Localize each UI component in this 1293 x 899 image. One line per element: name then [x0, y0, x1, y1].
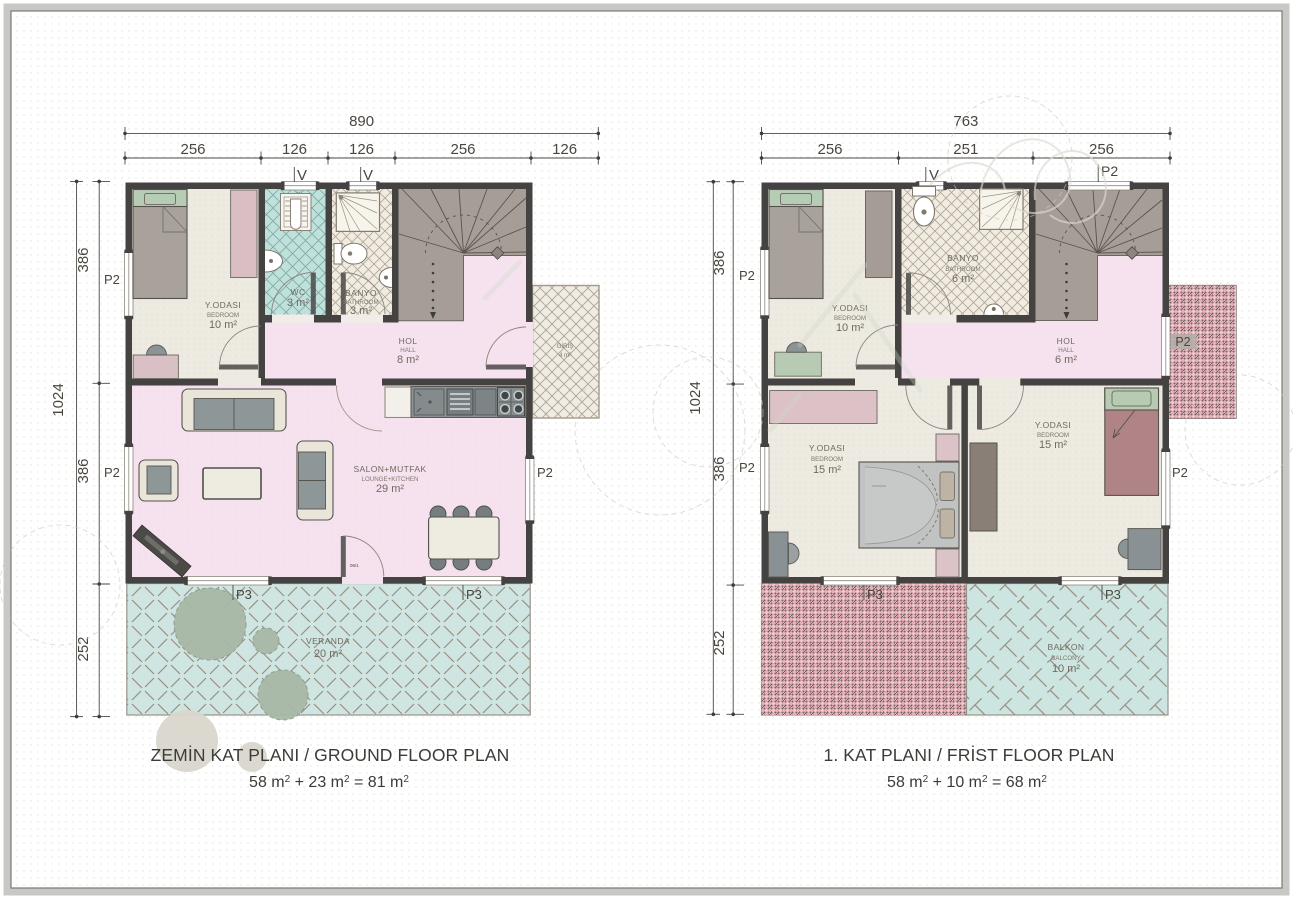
svg-text:8 m²: 8 m² [397, 354, 419, 366]
svg-text:P3: P3 [466, 587, 482, 602]
svg-text:256: 256 [817, 141, 842, 158]
svg-text:BALCONY: BALCONY [1051, 655, 1081, 662]
svg-text:3 m²: 3 m² [287, 297, 309, 309]
svg-text:10 m²: 10 m² [836, 322, 864, 334]
svg-text:HALL: HALL [1058, 347, 1074, 354]
svg-text:SALON+MUTFAK: SALON+MUTFAK [353, 464, 426, 474]
svg-text:HOL: HOL [1057, 336, 1076, 346]
svg-text:763: 763 [953, 113, 978, 130]
svg-text:386: 386 [75, 247, 92, 272]
svg-text:06/1: 06/1 [350, 563, 359, 568]
svg-text:P2: P2 [739, 268, 755, 283]
svg-text:6 m²: 6 m² [1055, 354, 1077, 366]
svg-text:1. KAT PLANI / FRİST FLOOR PLA: 1. KAT PLANI / FRİST FLOOR PLAN [824, 745, 1115, 765]
svg-text:252: 252 [75, 636, 92, 661]
svg-text:58 m2 + 10 m2 = 68 m2: 58 m2 + 10 m2 = 68 m2 [887, 774, 1047, 791]
svg-text:6 m²: 6 m² [952, 273, 974, 285]
svg-text:1024: 1024 [50, 383, 67, 416]
svg-text:15 m²: 15 m² [1039, 439, 1067, 451]
svg-text:256: 256 [450, 141, 475, 158]
svg-text:V: V [363, 167, 373, 184]
svg-text:Y.ODASI: Y.ODASI [1035, 420, 1071, 430]
svg-text:P2: P2 [1175, 335, 1190, 349]
svg-text:BEDROOM: BEDROOM [811, 456, 843, 463]
svg-text:256: 256 [180, 141, 205, 158]
svg-text:V: V [297, 167, 307, 184]
svg-text:BEDROOM: BEDROOM [207, 312, 239, 319]
svg-text:251: 251 [953, 141, 978, 158]
svg-text:P2: P2 [104, 272, 120, 287]
svg-text:WC: WC [291, 287, 306, 297]
svg-text:890: 890 [349, 113, 374, 130]
svg-text:BANYO: BANYO [947, 253, 979, 263]
svg-text:P2: P2 [739, 460, 755, 475]
svg-text:P2: P2 [104, 465, 120, 480]
svg-text:126: 126 [282, 141, 307, 158]
svg-text:LOUNGE+KITCHEN: LOUNGE+KITCHEN [362, 476, 419, 483]
svg-text:58 m2 + 23 m2 = 81 m2: 58 m2 + 23 m2 = 81 m2 [249, 774, 409, 791]
svg-text:386: 386 [711, 250, 728, 275]
svg-text:4 m²: 4 m² [559, 352, 571, 359]
svg-text:29 m²: 29 m² [376, 483, 404, 495]
svg-text:Y.ODASI: Y.ODASI [205, 300, 241, 310]
svg-text:386: 386 [75, 458, 92, 483]
svg-text:126: 126 [552, 141, 577, 158]
svg-text:BALKON: BALKON [1048, 642, 1085, 652]
svg-text:VERANDA: VERANDA [306, 636, 350, 646]
svg-text:P3: P3 [1105, 587, 1121, 602]
svg-text:P3: P3 [867, 587, 883, 602]
svg-text:P3: P3 [236, 587, 252, 602]
svg-text:HOL: HOL [399, 336, 418, 346]
svg-text:P2: P2 [537, 465, 553, 480]
svg-text:ZEMİN KAT PLANI / GROUND FLOOR: ZEMİN KAT PLANI / GROUND FLOOR PLAN [151, 745, 510, 765]
svg-text:386: 386 [711, 456, 728, 481]
svg-text:GİRİŞ: GİRİŞ [557, 343, 574, 350]
svg-text:BEDROOM: BEDROOM [834, 315, 866, 322]
svg-text:3 m²: 3 m² [350, 305, 372, 317]
svg-text:BEDROOM: BEDROOM [1037, 432, 1069, 439]
svg-text:BATHROOM: BATHROOM [945, 266, 980, 273]
svg-text:1024: 1024 [687, 381, 704, 414]
svg-text:252: 252 [711, 630, 728, 655]
svg-text:10 m²: 10 m² [209, 319, 237, 331]
svg-text:10 m²: 10 m² [1052, 663, 1080, 675]
svg-text:256: 256 [1089, 141, 1114, 158]
svg-text:20 m²: 20 m² [314, 648, 342, 660]
svg-text:15 m²: 15 m² [813, 464, 841, 476]
svg-text:BANYO: BANYO [345, 288, 377, 298]
svg-text:HALL: HALL [400, 347, 416, 354]
svg-text:Y.ODASI: Y.ODASI [809, 443, 845, 453]
svg-text:P2: P2 [1172, 465, 1188, 480]
svg-text:126: 126 [349, 141, 374, 158]
